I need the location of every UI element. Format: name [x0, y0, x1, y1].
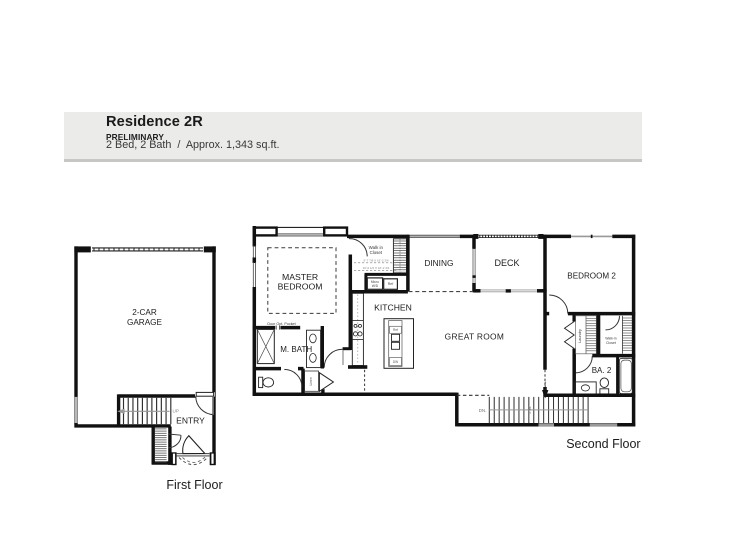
svg-text:M. BATH: M. BATH: [280, 345, 312, 354]
svg-text:10'-0 1/2 X 16'-2 3/4: 10'-0 1/2 X 16'-2 3/4: [363, 266, 390, 270]
svg-text:KITCHEN: KITCHEN: [374, 303, 412, 313]
svg-text:DN.: DN.: [479, 408, 487, 413]
svg-text:BA. 2: BA. 2: [592, 366, 612, 375]
svg-text:Second Floor: Second Floor: [566, 437, 640, 451]
svg-text:BEDROOM: BEDROOM: [278, 282, 323, 292]
svg-text:DW: DW: [393, 360, 398, 364]
svg-text:MASTER: MASTER: [282, 272, 318, 282]
svg-text:Closet: Closet: [370, 250, 383, 255]
svg-text:Micro: Micro: [371, 280, 379, 284]
svg-text:9'-7 7/8 X 16'-2 3/4: 9'-7 7/8 X 16'-2 3/4: [363, 258, 388, 262]
svg-text:DECK: DECK: [494, 258, 519, 268]
svg-text:Ref: Ref: [393, 328, 398, 332]
svg-text:W/D: W/D: [372, 284, 379, 288]
svg-text:ENTRY: ENTRY: [176, 416, 205, 426]
svg-text:UP: UP: [173, 408, 179, 413]
svg-text:First Floor: First Floor: [166, 478, 222, 492]
svg-text:2-CAR: 2-CAR: [132, 308, 157, 317]
svg-text:38'-2: 38'-2: [528, 406, 532, 413]
svg-text:Linen: Linen: [309, 377, 313, 385]
svg-text:DINING: DINING: [424, 258, 453, 268]
svg-text:Door Opt. Pocket: Door Opt. Pocket: [267, 322, 295, 326]
svg-text:Closet: Closet: [606, 341, 616, 345]
svg-text:Walk-in: Walk-in: [605, 336, 617, 340]
svg-text:GARAGE: GARAGE: [127, 318, 163, 327]
svg-text:Laundry: Laundry: [578, 329, 582, 343]
svg-text:BEDROOM 2: BEDROOM 2: [567, 272, 616, 281]
svg-text:Ref: Ref: [388, 282, 393, 286]
svg-text:GREAT ROOM: GREAT ROOM: [445, 332, 504, 342]
